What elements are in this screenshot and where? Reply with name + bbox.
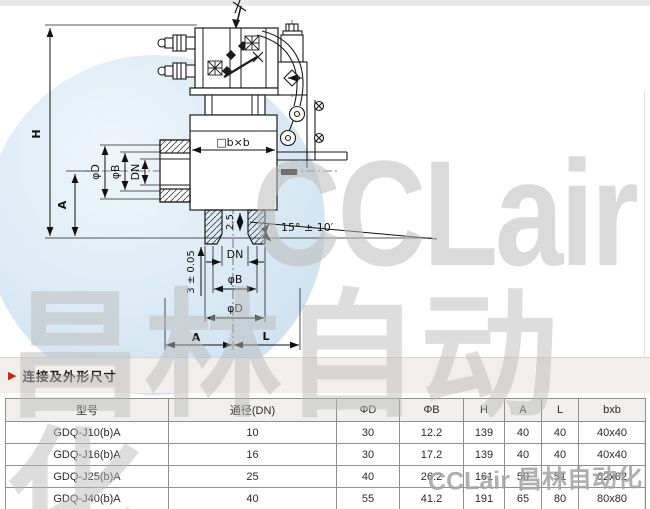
cell-l: 40 [542,422,579,444]
cell-dn: 10 [169,422,337,444]
column-header-phib: ΦB [400,399,464,422]
cell-phib: 41.2 [400,488,464,509]
table-row: GDQ-J10(b)A 10 30 12.2 139 40 40 40x40 [6,422,646,444]
column-header-a: A [505,399,542,422]
seat-angle-line [250,222,437,239]
dim-label-dn-left: DN [129,164,142,181]
dim-label-phib-left: φB [109,165,122,180]
dim-label-tol3: 3 ± 0.05 [186,250,197,293]
dim-label-a-left: A [56,200,69,209]
cell-h: 161 [464,466,505,488]
cell-l: 51 [542,466,579,488]
dim-label-angle: 15° ± 10′ [281,221,334,234]
cell-phib: 17.2 [400,444,464,466]
dim-label-bxb: □b×b [216,136,250,149]
dimension-table: 型号 通径(DN) ΦD ΦB H A L bxb GDQ-J10(b)A 10… [5,398,646,509]
dimension-table-wrap: 型号 通径(DN) ΦD ΦB H A L bxb GDQ-J10(b)A 10… [5,398,646,509]
cell-phib: 12.2 [400,422,464,444]
cell-bxb: 40x40 [579,444,646,466]
cell-model: GDQ-J25(b)A [6,466,169,488]
cell-bxb: 80x80 [579,488,646,509]
cell-phid: 40 [337,466,400,488]
cell-h: 139 [464,444,505,466]
cell-h: 139 [464,422,505,444]
cell-a: 40 [505,444,542,466]
cell-model: GDQ-J10(b)A [6,422,169,444]
cell-phid: 55 [337,488,400,509]
table-header-row: 型号 通径(DN) ΦD ΦB H A L bxb [6,399,646,422]
cell-phid: 30 [337,444,400,466]
dim-label-25: 2.5 [225,214,236,230]
dim-label-a-bottom: A [192,331,201,344]
cell-phib: 26.2 [400,466,464,488]
column-header-model: 型号 [6,399,169,422]
cell-dn: 16 [169,444,337,466]
column-header-bxb: bxb [579,399,646,422]
cable-glands [158,35,195,79]
dim-label-phib-bottom: φB [228,273,243,286]
dim-label-phid-left: φD [89,164,102,180]
dim-label-h: H [30,129,43,138]
table-row: GDQ-J40(b)A 40 55 41.2 191 65 80 80x80 [6,488,646,509]
cell-l: 40 [542,444,579,466]
cell-dn: 25 [169,466,337,488]
dim-label-l-bottom: L [262,330,269,343]
table-row: GDQ-J16(b)A 16 30 17.2 139 40 40 40x40 [6,444,646,466]
cell-a: 65 [505,488,542,509]
column-header-l: L [542,399,579,422]
dim-label-dn-bottom: DN [227,248,244,261]
cell-bxb: 40x40 [579,422,646,444]
section-marker-icon: ▶ [8,369,16,382]
column-header-dn: 通径(DN) [169,399,337,422]
dim-label-phid-bottom: φD [227,302,243,315]
cell-dn: 40 [169,488,337,509]
column-header-h: H [464,399,505,422]
cell-a: 50 [505,466,542,488]
table-row: GDQ-J25(b)A 25 40 26.2 161 50 51 62x62 [6,466,646,488]
cell-a: 40 [505,422,542,444]
valve-dimension-drawing: H A φD φB DN □b×b 2.5 15° ± 10′ 3 ± 0.05… [0,0,650,360]
cell-phid: 30 [337,422,400,444]
lever-arrow [232,0,246,29]
cell-bxb: 62x62 [579,466,646,488]
cell-h: 191 [464,488,505,509]
cell-model: GDQ-J16(b)A [6,444,169,466]
column-header-phid: ΦD [337,399,400,422]
datasheet-page: H A φD φB DN □b×b 2.5 15° ± 10′ 3 ± 0.05… [0,0,650,509]
section-title: 连接及外形尺寸 [22,366,117,385]
cell-model: GDQ-J40(b)A [6,488,169,509]
cell-l: 80 [542,488,579,509]
section-header: ▶ 连接及外形尺寸 [0,357,650,393]
